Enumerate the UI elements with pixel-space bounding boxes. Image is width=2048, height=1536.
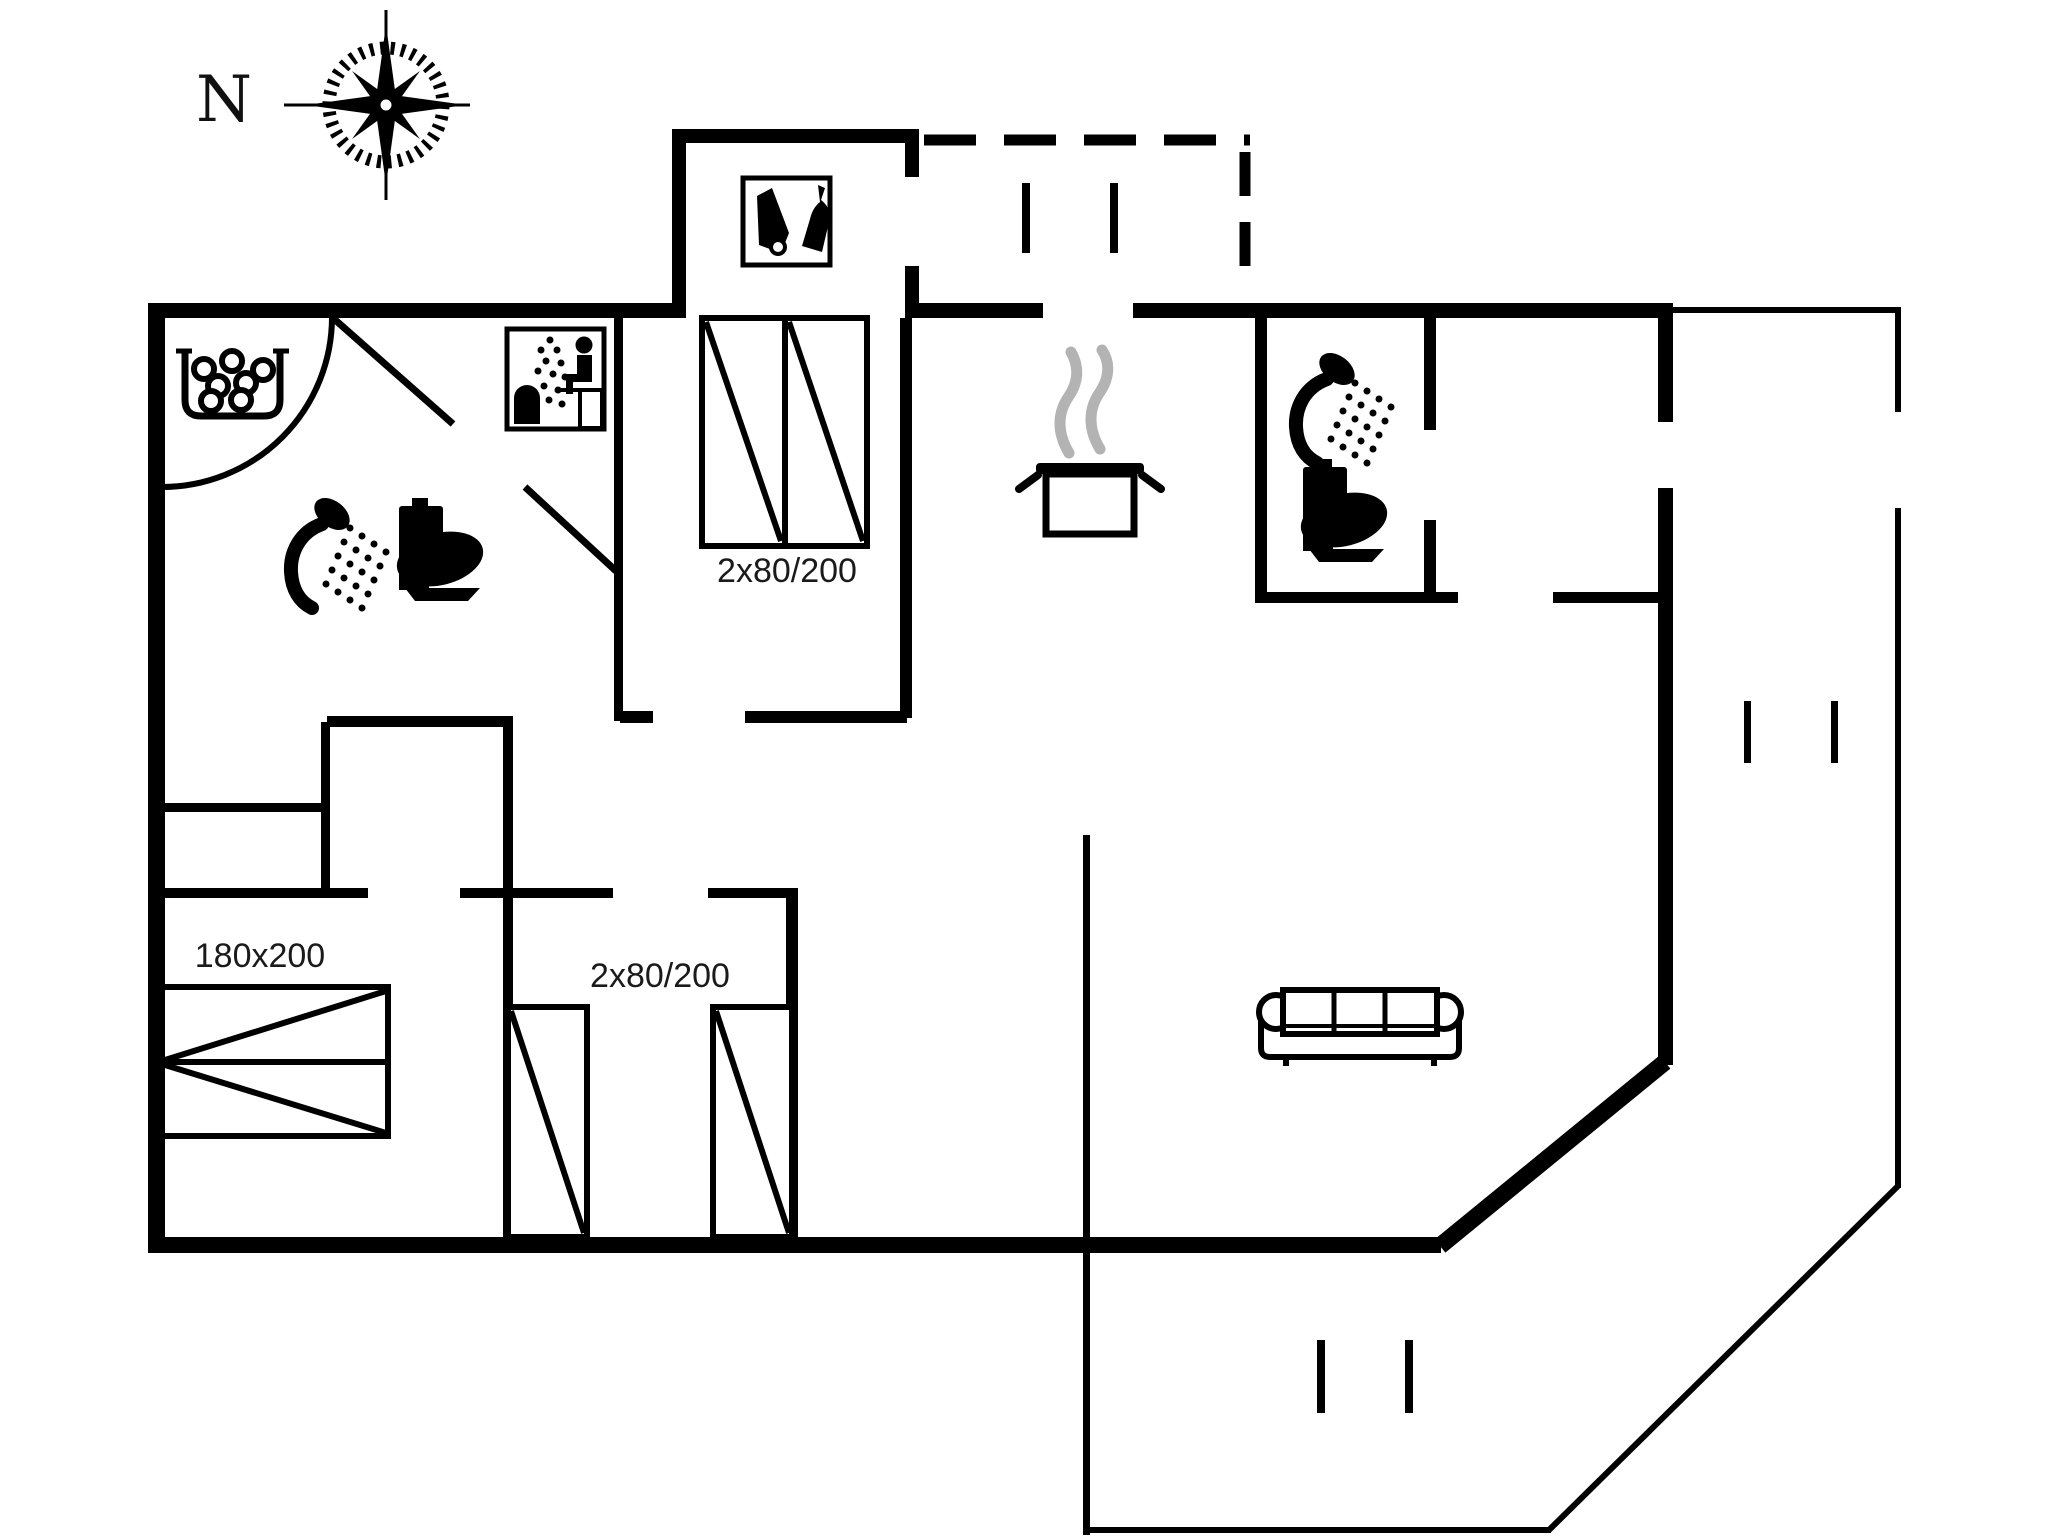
wall-east-lower — [1658, 488, 1673, 1065]
bed-size-label-south: 2x80/200 — [560, 958, 760, 995]
utility-room-wall-west — [672, 129, 686, 318]
sauna-icon — [507, 329, 604, 429]
post-icon — [1110, 183, 1118, 253]
wall-north-bedroom-south — [745, 711, 907, 723]
wall-southeast-diagonal — [1440, 1062, 1665, 1246]
bed-size-label-north: 2x80/200 — [688, 553, 886, 590]
wall-living-divider — [1083, 835, 1090, 1535]
wall-hall-south-c — [708, 888, 798, 898]
east-terrace-outline — [1086, 310, 1901, 1531]
compass-rose-icon — [284, 10, 470, 200]
floor-plan: N 2x80/200 180x200 2x80/200 — [0, 0, 2048, 1536]
wall-spa-bedroom — [614, 318, 623, 721]
cleaning-equipment-icon — [743, 178, 830, 265]
steam-icon — [1060, 352, 1077, 453]
shower-icon — [291, 491, 390, 611]
compass-north-label: N — [196, 68, 252, 132]
post-icon — [1405, 1340, 1413, 1413]
wall-hall-south-a — [160, 888, 368, 898]
wall-bath-south — [327, 716, 508, 727]
entrance-door-leaf — [333, 318, 453, 424]
utility-room-wall-east-b — [905, 266, 919, 318]
post-icon — [1831, 701, 1838, 763]
wall-east-bath-west — [1255, 318, 1267, 603]
wall-ne-room-south — [1553, 592, 1660, 603]
utility-room-wall-north — [672, 129, 919, 143]
toilet-icon — [1295, 459, 1393, 562]
bathroom-door-leaf — [525, 487, 616, 571]
wall-door-jamb — [620, 711, 653, 723]
north-terrace-dashed — [924, 140, 1250, 290]
bed-size-label-southwest: 180x200 — [160, 938, 360, 975]
post-icon — [1744, 701, 1751, 763]
single-beds-south — [508, 1007, 792, 1237]
cooking-pot-icon — [1019, 350, 1161, 534]
terrace-edge-diagonal — [1548, 1186, 1898, 1531]
floor-plan-drawing — [0, 0, 2048, 1536]
wall-north-east — [1133, 303, 1673, 318]
wall-north-bedroom-east — [900, 318, 912, 718]
double-bed-southwest — [162, 987, 388, 1136]
wall-closet-top — [160, 803, 329, 812]
toilet-icon — [391, 498, 489, 601]
wall-closet-right — [321, 722, 330, 894]
wall-east-bath-south — [1255, 592, 1458, 603]
wall-east-bath-east-b — [1424, 520, 1436, 603]
interior-walls — [160, 318, 1660, 1535]
post-icon — [1022, 183, 1030, 253]
steam-icon — [1091, 350, 1108, 449]
post-icon — [1317, 1340, 1325, 1413]
utility-room-wall-east-a — [905, 129, 919, 177]
wall-hall-south-b — [460, 888, 613, 898]
wall-north-west — [148, 303, 674, 318]
sofa-icon — [1259, 990, 1461, 1066]
double-bed-north — [702, 318, 867, 546]
wall-east-bath-east-a — [1424, 318, 1436, 430]
shower-icon — [1296, 346, 1395, 466]
wall-east-upper — [1658, 318, 1673, 422]
whirlpool-bath-icon — [176, 351, 289, 416]
wall-north-mid — [919, 303, 1043, 318]
